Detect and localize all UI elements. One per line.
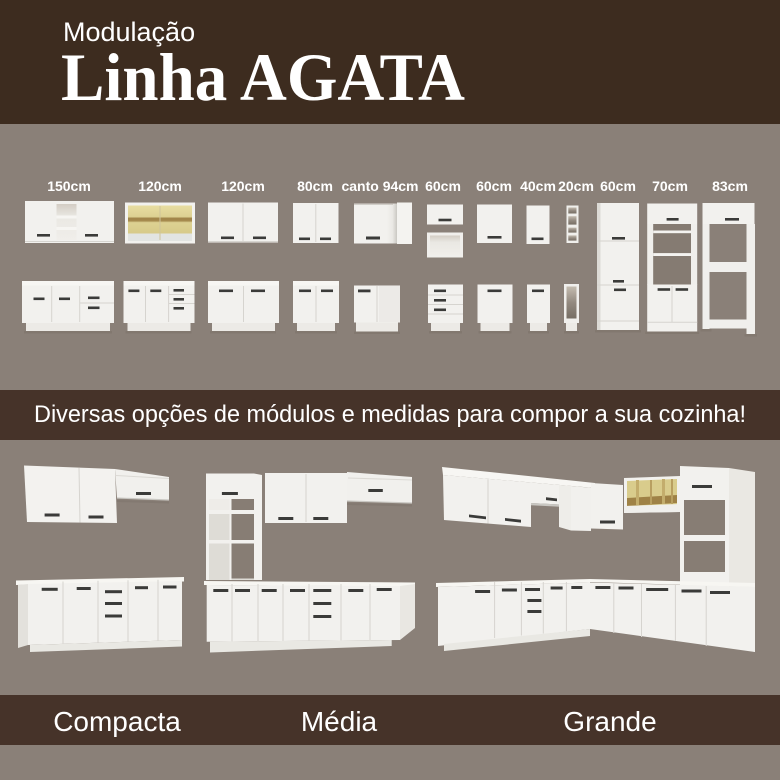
svg-text:120cm: 120cm (138, 178, 182, 194)
svg-text:Compacta: Compacta (53, 706, 181, 737)
svg-text:120cm: 120cm (221, 178, 265, 194)
svg-text:70cm: 70cm (652, 178, 688, 194)
svg-text:60cm: 60cm (425, 178, 461, 194)
svg-text:Linha AGATA: Linha AGATA (61, 39, 465, 115)
svg-text:60cm: 60cm (600, 178, 636, 194)
svg-text:150cm: 150cm (47, 178, 91, 194)
svg-text:Grande: Grande (563, 706, 656, 737)
svg-text:Média: Média (301, 706, 378, 737)
svg-text:80cm: 80cm (297, 178, 333, 194)
svg-text:20cm: 20cm (558, 178, 594, 194)
svg-text:83cm: 83cm (712, 178, 748, 194)
svg-text:Diversas opções de módulos e m: Diversas opções de módulos e medidas par… (34, 401, 746, 428)
svg-text:60cm: 60cm (476, 178, 512, 194)
svg-text:canto 94cm: canto 94cm (341, 178, 418, 194)
svg-text:40cm: 40cm (520, 178, 556, 194)
